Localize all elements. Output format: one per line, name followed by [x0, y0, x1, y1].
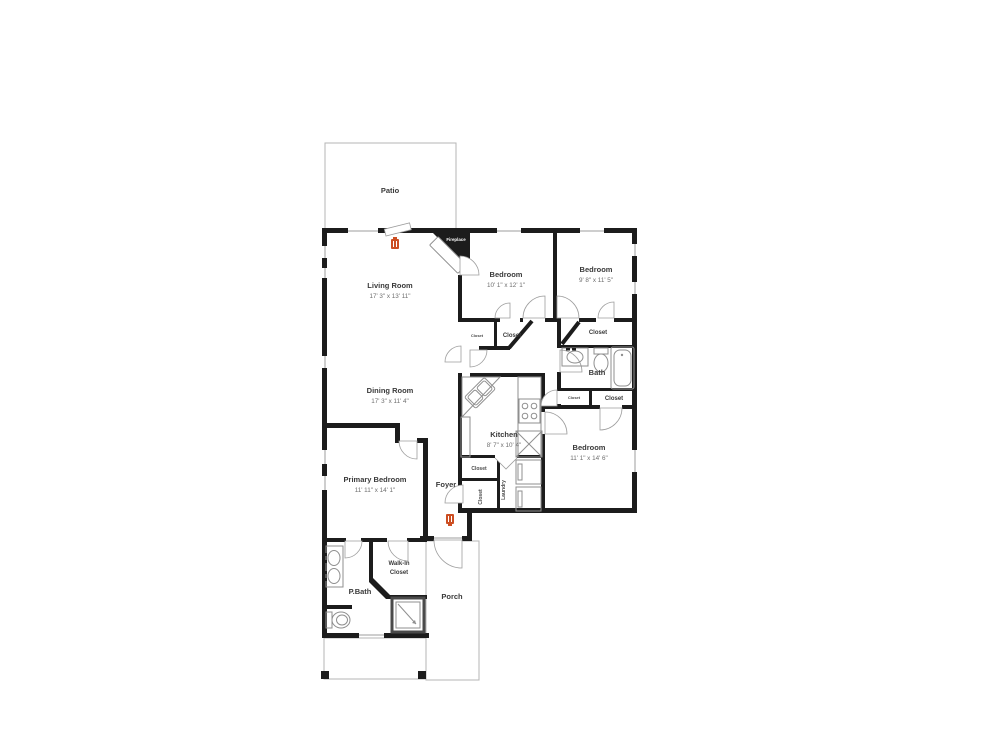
water-heater-icon: [446, 514, 454, 526]
window: [348, 227, 378, 234]
bedroom1-closet-door: [495, 303, 510, 318]
closet-label-bd1-small: Closet: [471, 333, 484, 338]
deck-post-right: [418, 671, 426, 679]
window: [321, 246, 328, 258]
closet-label-linen: Closet: [568, 395, 581, 400]
pbath-toilet-icon: [326, 612, 350, 628]
porch-label: Porch: [441, 592, 463, 601]
bedroom1-door: [460, 256, 479, 275]
closet-label-bd2: Closet: [589, 330, 607, 336]
bedroom2-dims: 9' 8" x 11' 5": [579, 277, 613, 284]
floor-plan: Fireplace: [0, 0, 1000, 740]
primary-bedroom-dims: 11' 11" x 14' 1": [355, 487, 396, 494]
deck-outline: [324, 638, 426, 679]
patio-door-leaf: [384, 223, 411, 236]
bath-door: [560, 350, 582, 372]
pbath-door: [345, 541, 362, 558]
front-door: [434, 540, 462, 568]
kitchen-label: Kitchen: [490, 430, 518, 439]
bedroom3-dims: 11' 1" x 14' 6": [570, 455, 608, 462]
shower-icon: [392, 598, 424, 632]
pbath-fixtures: [324, 546, 424, 632]
window: [631, 244, 638, 256]
patio-label: Patio: [381, 186, 400, 195]
fireplace-label: Fireplace: [446, 237, 466, 242]
thermostat-icon: [391, 237, 399, 249]
hall-door: [470, 350, 487, 367]
closet-label-bd1: Closet: [503, 333, 521, 339]
window: [580, 227, 604, 234]
bathtub-icon: [611, 347, 634, 389]
hall-closet-door: [600, 408, 622, 430]
laundry-fixtures: [516, 460, 541, 511]
dining-room-label: Dining Room: [367, 386, 414, 395]
bedroom3-door: [545, 412, 567, 434]
bedroom1-dims: 10' 1" x 12' 1": [487, 282, 525, 289]
kitchen-dims: 8' 7" x 10' 4": [487, 442, 522, 449]
primary-bedroom-label: Primary Bedroom: [344, 475, 407, 484]
bedroom3-label: Bedroom: [573, 443, 606, 452]
closet-label-foyer: Closet: [478, 489, 484, 505]
hall-bedroom1-door: [523, 296, 545, 318]
stove-icon: [519, 399, 540, 423]
laundry-label: Laundry: [501, 480, 507, 500]
dining-room-dims: 17' 3" x 11' 4": [371, 398, 409, 405]
window: [321, 450, 328, 464]
window: [321, 356, 328, 368]
kitchen-sink: [464, 377, 495, 408]
window: [321, 476, 328, 490]
walkin-closet-door: [388, 541, 408, 561]
walkin-closet-label-line1: Walk-In: [388, 561, 409, 567]
living-room-label: Living Room: [367, 281, 413, 290]
primary-bedroom-door: [399, 441, 417, 459]
deck-post-left: [321, 671, 329, 679]
foyer-label: Foyer: [436, 480, 457, 489]
pbath-label: P.Bath: [349, 587, 372, 596]
bedroom2-label: Bedroom: [580, 265, 613, 274]
bath-label: Bath: [589, 368, 606, 377]
bedroom1-label: Bedroom: [490, 270, 523, 279]
window: [631, 282, 638, 294]
bedroom2-closet-door: [598, 302, 614, 318]
window: [631, 450, 638, 472]
bedroom2-door: [557, 296, 579, 318]
small-closet-door: [445, 346, 461, 362]
closet-label-bd3: Closet: [605, 396, 623, 402]
window: [321, 268, 328, 278]
walkin-closet-label-line2: Closet: [390, 570, 408, 576]
living-room-dims: 17' 3" x 13' 11": [369, 293, 410, 300]
window: [497, 227, 521, 234]
closet-label-hall-top: Closet: [471, 466, 487, 472]
